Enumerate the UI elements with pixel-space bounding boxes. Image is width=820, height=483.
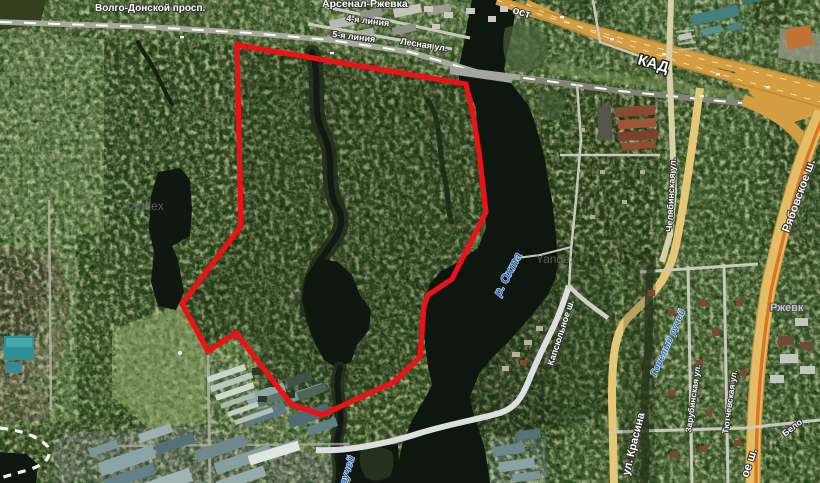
svg-text:Yandex: Yandex (124, 199, 164, 213)
svg-text:Волго-Донской просп.: Волго-Донской просп. (95, 3, 205, 14)
svg-text:Yandex: Yandex (536, 252, 576, 266)
svg-text:Арсенал-Ржевка: Арсенал-Ржевка (322, 0, 408, 10)
svg-text:Ржевк: Ржевк (770, 302, 804, 314)
